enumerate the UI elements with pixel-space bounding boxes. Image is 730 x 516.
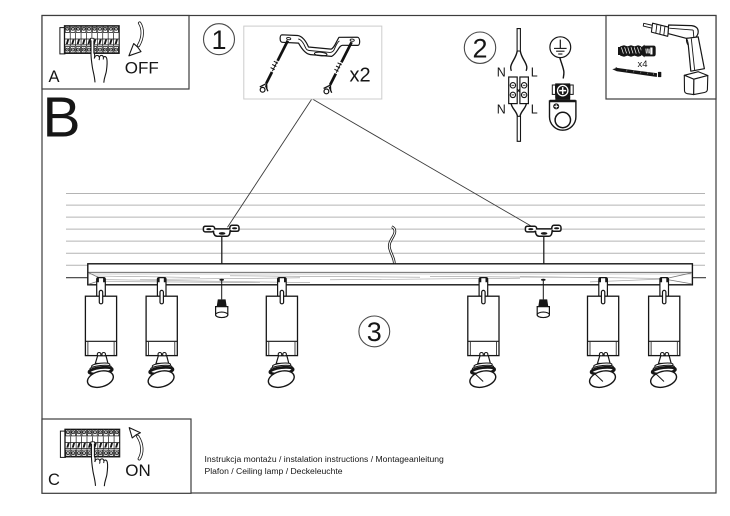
svg-text:2: 2 bbox=[472, 34, 487, 64]
svg-text:OFF: OFF bbox=[125, 59, 159, 78]
svg-text:1: 1 bbox=[211, 25, 226, 55]
svg-text:x2: x2 bbox=[350, 65, 371, 87]
svg-text:N: N bbox=[497, 65, 506, 79]
svg-text:ON: ON bbox=[125, 461, 151, 480]
svg-text:L: L bbox=[531, 65, 538, 79]
svg-text:x4: x4 bbox=[638, 59, 648, 70]
svg-text:A: A bbox=[49, 68, 60, 86]
svg-text:B: B bbox=[43, 85, 81, 149]
svg-text:Plafon / Ceiling lamp / Deckel: Plafon / Ceiling lamp / Deckeleuchte bbox=[205, 466, 343, 476]
svg-text:3: 3 bbox=[367, 317, 382, 347]
svg-text:N: N bbox=[497, 102, 506, 116]
svg-text:C: C bbox=[48, 471, 60, 489]
svg-text:L: L bbox=[531, 102, 538, 116]
svg-text:Instrukcja montażu / instalati: Instrukcja montażu / instalation instruc… bbox=[205, 454, 445, 464]
